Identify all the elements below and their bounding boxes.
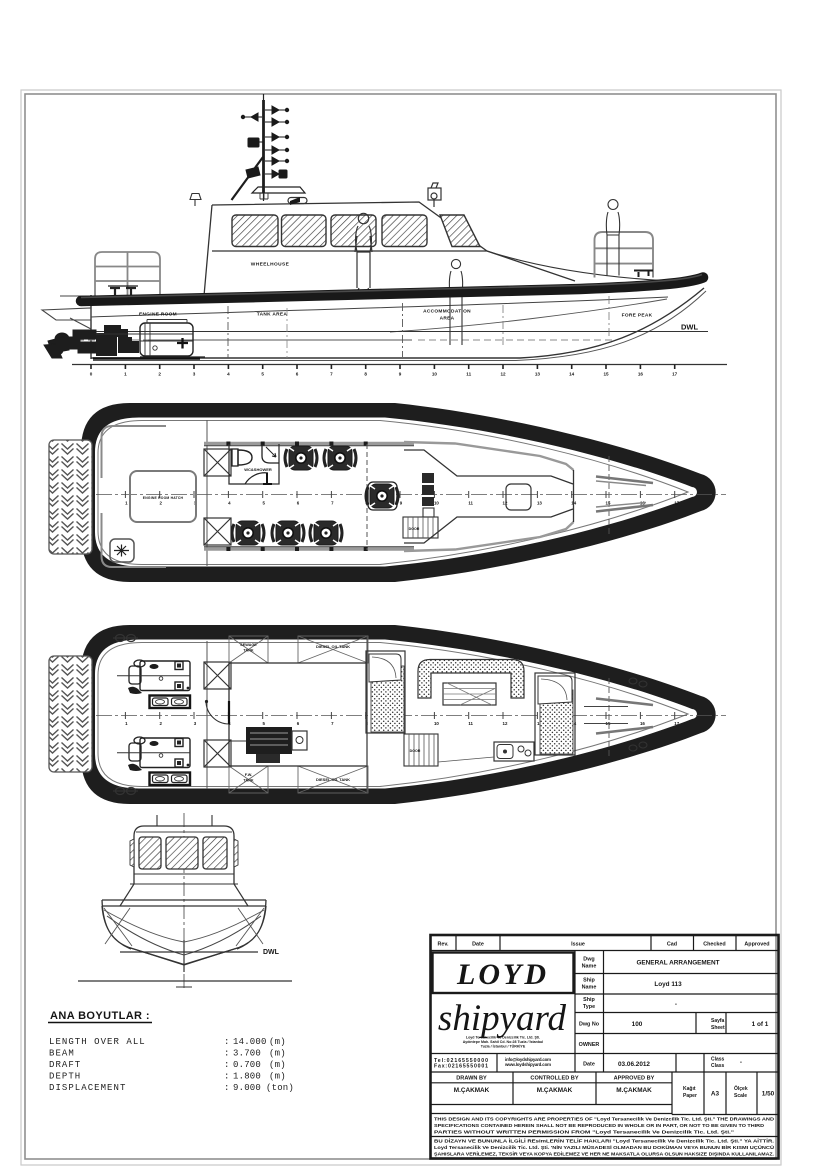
svg-text:LENGTH OVER ALL: LENGTH OVER ALL — [49, 1037, 146, 1047]
svg-text:BEAM: BEAM — [49, 1049, 75, 1059]
svg-text:1/50: 1/50 — [762, 1091, 775, 1098]
svg-text:16: 16 — [638, 372, 644, 377]
svg-text:11: 11 — [466, 372, 471, 377]
svg-text:SPECIFICATIONS CONTAINED HEREI: SPECIFICATIONS CONTAINED HEREIN SHALL NO… — [434, 1123, 765, 1128]
svg-text:DIESEL OIL TANK: DIESEL OIL TANK — [316, 777, 350, 782]
svg-text:Kağıt: Kağıt — [683, 1086, 696, 1092]
svg-text:3.700: 3.700 — [233, 1049, 261, 1059]
svg-text:Class: Class — [711, 1057, 725, 1063]
svg-text:THIS DESIGN AND ITS COPYRIGHTS: THIS DESIGN AND ITS COPYRIGHTS ARE PROPE… — [434, 1117, 775, 1122]
svg-text:1 of 1: 1 of 1 — [752, 1021, 769, 1028]
svg-text::: : — [224, 1060, 230, 1070]
svg-text:(m): (m) — [269, 1037, 286, 1047]
svg-text:ENGINE ROOM: ENGINE ROOM — [139, 312, 177, 318]
svg-text:Name: Name — [582, 985, 597, 991]
svg-text:Issue: Issue — [571, 942, 585, 948]
svg-text:Ship: Ship — [583, 997, 595, 1003]
svg-text:Sheet: Sheet — [711, 1025, 725, 1031]
svg-text:CONTROLLED BY: CONTROLLED BY — [530, 1076, 578, 1082]
svg-text:Paper: Paper — [683, 1093, 697, 1099]
svg-text:3: 3 — [193, 372, 196, 377]
svg-text:AREA: AREA — [440, 316, 455, 322]
svg-text:BU DİZAYN VE BUNUNLA İLGİLİ RE: BU DİZAYN VE BUNUNLA İLGİLİ REsimLERİN T… — [434, 1138, 774, 1144]
svg-text:0.700: 0.700 — [233, 1060, 261, 1070]
svg-text:OWNER: OWNER — [579, 1042, 600, 1048]
svg-text:M.ÇAKMAK: M.ÇAKMAK — [537, 1087, 573, 1094]
svg-text:17: 17 — [674, 721, 679, 726]
svg-text:13: 13 — [535, 372, 541, 377]
svg-text:DOOR: DOOR — [410, 749, 421, 753]
svg-text:Fax:02165550001: Fax:02165550001 — [434, 1064, 488, 1070]
svg-text:WC&SHOWER: WC&SHOWER — [244, 467, 272, 472]
svg-text:17: 17 — [674, 501, 679, 506]
svg-text:TANK AREA: TANK AREA — [257, 312, 288, 318]
svg-text:100: 100 — [632, 1021, 643, 1028]
svg-text:DIESEL OIL TANK: DIESEL OIL TANK — [316, 644, 350, 649]
svg-text:Aydıntepe Mah. Sahil Cd. No:28: Aydıntepe Mah. Sahil Cd. No:28 Tuzla / İ… — [463, 1040, 543, 1044]
svg-text:FORE PEAK: FORE PEAK — [622, 313, 653, 319]
svg-text:M.ÇAKMAK: M.ÇAKMAK — [616, 1087, 652, 1094]
svg-text:Scale: Scale — [734, 1093, 747, 1099]
svg-text:ŞAHISLARA VERİLEMEZ, TEKSİR VE: ŞAHISLARA VERİLEMEZ, TEKSİR VEYA KOPYA E… — [434, 1151, 774, 1157]
svg-text:15: 15 — [603, 372, 609, 377]
svg-text:Approved: Approved — [744, 942, 769, 948]
svg-text:Loyd Tersanecilik Ve Denizcili: Loyd Tersanecilik Ve Denizcilik Tic. Ltd… — [434, 1144, 774, 1150]
svg-text:Type: Type — [583, 1004, 595, 1010]
svg-text:Dwg No: Dwg No — [579, 1022, 600, 1028]
svg-text:11: 11 — [468, 501, 473, 506]
svg-text:DRAFT: DRAFT — [49, 1060, 81, 1070]
svg-text:(m): (m) — [269, 1049, 286, 1059]
svg-text:(ton): (ton) — [266, 1083, 294, 1093]
svg-text:Ship: Ship — [583, 978, 595, 984]
svg-text:TANK: TANK — [243, 779, 254, 783]
svg-text:12: 12 — [503, 501, 508, 506]
svg-text:1.800: 1.800 — [233, 1072, 261, 1082]
svg-text:DWL: DWL — [681, 323, 698, 332]
svg-text:Date: Date — [472, 942, 484, 948]
svg-text:TANK: TANK — [243, 649, 254, 653]
svg-text:Tuzla / İstanbul / TÜRKİYE: Tuzla / İstanbul / TÜRKİYE — [481, 1044, 526, 1049]
svg-text:ANA BOYUTLAR :: ANA BOYUTLAR : — [50, 1010, 150, 1022]
svg-text:Date: Date — [583, 1062, 595, 1068]
svg-text:9: 9 — [399, 372, 402, 377]
svg-text:Loyd 113: Loyd 113 — [654, 981, 682, 988]
svg-text:DISPLACEMENT: DISPLACEMENT — [49, 1083, 126, 1093]
svg-text::: : — [224, 1083, 230, 1093]
svg-text:F.W.: F.W. — [245, 773, 252, 777]
svg-text:GENERAL ARRANGEMENT: GENERAL ARRANGEMENT — [636, 960, 719, 967]
svg-text:12: 12 — [503, 721, 508, 726]
svg-text:13: 13 — [537, 501, 542, 506]
svg-text:Cad: Cad — [667, 942, 677, 948]
svg-text::: : — [224, 1049, 230, 1059]
svg-text:APPROVED BY: APPROVED BY — [614, 1076, 655, 1082]
svg-text:www.loydshipyard.com: www.loydshipyard.com — [504, 1062, 551, 1067]
svg-text:-: - — [740, 1059, 742, 1066]
svg-text:12: 12 — [500, 372, 506, 377]
svg-text:(m): (m) — [269, 1072, 286, 1082]
svg-text:Ölçek: Ölçek — [734, 1085, 748, 1092]
svg-text:10: 10 — [434, 721, 439, 726]
svg-text:1: 1 — [124, 372, 127, 377]
svg-text:6: 6 — [296, 372, 299, 377]
svg-text:A3: A3 — [711, 1091, 720, 1098]
svg-text:17: 17 — [672, 372, 678, 377]
svg-text:16: 16 — [640, 721, 645, 726]
svg-text:14: 14 — [569, 372, 575, 377]
svg-text:Name: Name — [582, 964, 597, 970]
svg-text::: : — [224, 1072, 230, 1082]
svg-text:2: 2 — [158, 372, 161, 377]
svg-text:DRAWN BY: DRAWN BY — [456, 1076, 487, 1082]
svg-text:M.ÇAKMAK: M.ÇAKMAK — [454, 1087, 490, 1094]
svg-text:8: 8 — [364, 372, 367, 377]
svg-text:DEPTH: DEPTH — [49, 1072, 81, 1082]
svg-text:Class: Class — [711, 1063, 725, 1069]
svg-text:15: 15 — [606, 501, 611, 506]
svg-text:03.06.2012: 03.06.2012 — [618, 1061, 650, 1068]
svg-text:11: 11 — [468, 721, 473, 726]
svg-text:shipyard: shipyard — [438, 998, 567, 1039]
svg-text:Sayfa: Sayfa — [711, 1018, 725, 1024]
svg-text:0: 0 — [90, 372, 93, 377]
svg-text:LOYD: LOYD — [456, 958, 549, 991]
svg-text:PARTIES WITHOUT WRITTEN P: PARTIES WITHOUT WRITTEN PERMISSION FROM … — [434, 1130, 734, 1135]
svg-text::: : — [224, 1037, 230, 1047]
svg-text:DWL: DWL — [263, 949, 280, 956]
svg-text:7: 7 — [330, 372, 333, 377]
svg-text:14.000: 14.000 — [233, 1037, 267, 1047]
svg-text:10: 10 — [434, 501, 439, 506]
svg-text:DOOR: DOOR — [409, 527, 420, 531]
svg-text:-: - — [675, 1001, 677, 1008]
svg-text:Loyd Tersanecilik Ve Denizcili: Loyd Tersanecilik Ve Denizcilik Tic. Ltd… — [466, 1036, 540, 1040]
svg-text:ACCOMMODATION: ACCOMMODATION — [423, 309, 471, 315]
svg-text:Dwg: Dwg — [583, 957, 594, 963]
svg-text:5: 5 — [261, 372, 264, 377]
svg-text:Checked: Checked — [703, 942, 725, 948]
svg-text:SEWAGE: SEWAGE — [240, 643, 257, 647]
svg-text:10: 10 — [432, 372, 438, 377]
svg-text:ENGINE ROOM HATCH: ENGINE ROOM HATCH — [143, 496, 184, 500]
svg-text:(m): (m) — [269, 1060, 286, 1070]
svg-text:WHEELHOUSE: WHEELHOUSE — [251, 262, 290, 268]
svg-text:Rev.: Rev. — [438, 942, 449, 948]
svg-text:9.000: 9.000 — [233, 1083, 261, 1093]
svg-text:4: 4 — [227, 372, 230, 377]
